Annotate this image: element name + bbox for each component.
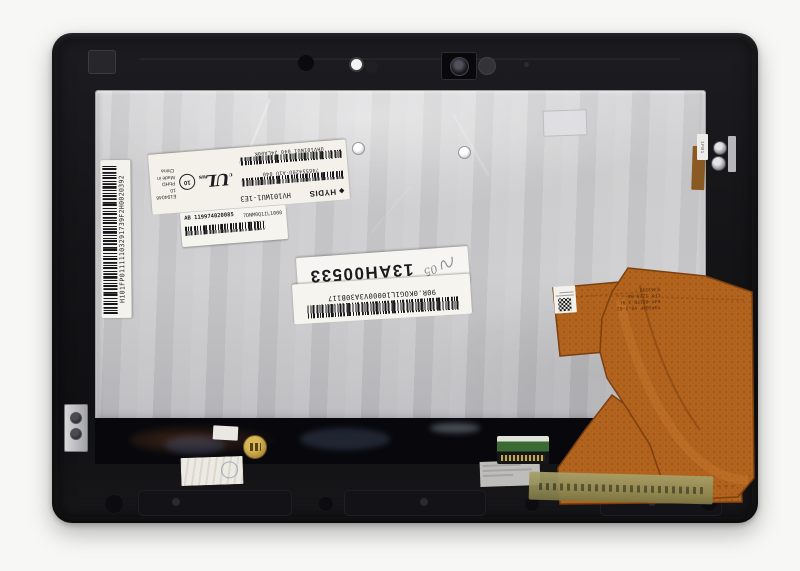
frame-molding <box>344 490 486 516</box>
frame-boss <box>420 498 428 506</box>
ul-suffix: us <box>199 173 207 180</box>
recycle-mark-icon: 10 <box>179 173 196 190</box>
ul-prefix: c <box>229 171 233 177</box>
gold-sticker-marks <box>250 443 261 451</box>
ul-recognized-icon: c UL us <box>199 171 234 188</box>
ul-letters: UL <box>206 171 230 187</box>
reflection <box>430 423 480 433</box>
hydis-spec-block: ◆ HYDIS HV101WU1-1E3 74655420U-A1U 040 U… <box>237 144 345 204</box>
side-serial-label-face: H101FP01111103291739F2H0020392 <box>100 160 131 318</box>
corner-mount-piece <box>88 50 116 74</box>
brand-diamond-icon: ◆ <box>339 187 345 195</box>
label-text-line <box>483 464 521 467</box>
small-white-tab <box>213 425 239 440</box>
sensor-opening-2 <box>365 60 378 73</box>
qr-code-icon <box>558 298 572 312</box>
bezel-groove <box>140 58 680 60</box>
side-serial-label: H101FP01111103291739F2H0020392 <box>101 160 131 318</box>
pin-hole <box>524 62 529 67</box>
pen-scribble-icon <box>436 253 459 275</box>
barcode <box>102 164 117 314</box>
bracket-tag-text: 1FB1 <box>700 141 705 154</box>
serial-row-1: 74655420U-A1U 040 <box>238 165 343 187</box>
regulatory-block: c UL us 10 E194046 10 PbHD Made in China <box>153 152 235 210</box>
screw-hole-2 <box>458 146 471 159</box>
label-text-line <box>483 474 513 477</box>
inventory-code-left: AB 119974020085 <box>184 212 234 222</box>
qc-stamp-label <box>181 456 244 486</box>
product-photo: H101FP01111103291739F2H0020392 ◆ HYDIS H… <box>0 0 800 571</box>
sensor-opening <box>298 55 314 71</box>
bracket-tag-label: 1FB1 <box>697 134 708 160</box>
side-serial-text: H101FP01111103291739F2H0020392 <box>117 163 126 315</box>
right-mount-bracket <box>728 136 736 172</box>
frame-boss <box>172 498 180 506</box>
kapton-tape-connector <box>529 472 714 505</box>
reg-line-3: Made in China <box>154 167 175 182</box>
reg-line-1: E194046 <box>156 193 176 201</box>
mic-opening <box>478 57 496 75</box>
serial-row-2: UHV101WU1 040 24LA00K <box>237 144 342 166</box>
panel-model: HV101WU1-1E3 <box>240 191 291 203</box>
gold-round-sticker <box>243 435 267 459</box>
frame-recess <box>318 496 334 512</box>
screw <box>713 141 727 155</box>
gray-tape-piece <box>543 109 588 137</box>
screw <box>70 428 82 440</box>
qr-code-label <box>553 285 577 313</box>
inventory-code-right: 7DNM0Q1IL1000 <box>243 210 282 219</box>
flex-print-text: TOPSO4F V0.2-02 64Y-0Q1FB-3 9L LFX 1228.… <box>574 285 661 312</box>
screw-hole <box>352 142 365 155</box>
reflection <box>300 428 390 450</box>
brand-name: HYDIS <box>309 187 337 198</box>
regulatory-text: E194046 10 PbHD Made in China <box>154 167 177 201</box>
camera-window <box>351 59 362 70</box>
frame-recess <box>104 494 124 514</box>
round-stamp-icon <box>221 461 239 479</box>
camera-lens <box>450 57 469 76</box>
reg-line-2: 10 PbHD <box>155 180 176 195</box>
screw <box>711 156 726 171</box>
frame-molding <box>138 490 292 516</box>
screw <box>70 412 82 424</box>
